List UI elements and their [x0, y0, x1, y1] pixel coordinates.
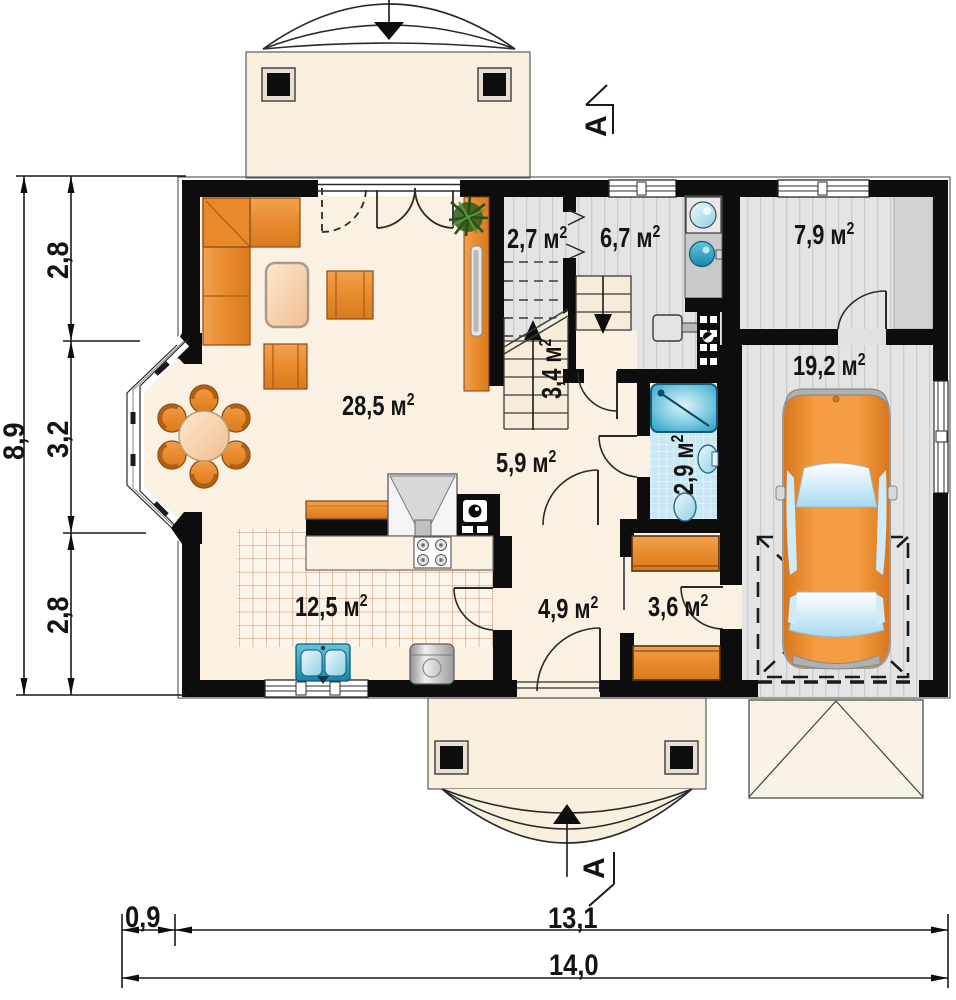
svg-text:14,0: 14,0	[549, 948, 599, 981]
svg-text:4,9 м2: 4,9 м2	[538, 592, 598, 624]
svg-text:8,9: 8,9	[0, 422, 31, 460]
svg-text:2,9 м2: 2,9 м2	[667, 435, 699, 495]
svg-text:0,9: 0,9	[125, 900, 160, 933]
svg-text:7,9 м2: 7,9 м2	[794, 218, 854, 250]
svg-text:3,4 м2: 3,4 м2	[535, 339, 567, 399]
svg-text:3,2: 3,2	[42, 420, 76, 458]
svg-text:28,5 м2: 28,5 м2	[342, 389, 415, 421]
svg-text:6,7 м2: 6,7 м2	[600, 221, 660, 253]
svg-text:13,1: 13,1	[548, 901, 598, 934]
svg-text:5,9 м2: 5,9 м2	[496, 446, 556, 478]
svg-text:2,8: 2,8	[42, 596, 76, 634]
svg-text:A: A	[580, 115, 613, 137]
svg-text:A: A	[578, 857, 611, 879]
svg-text:3,6 м2: 3,6 м2	[648, 590, 708, 622]
svg-text:19,2 м2: 19,2 м2	[793, 349, 866, 381]
svg-text:2,8: 2,8	[42, 241, 76, 279]
svg-text:2,7 м2: 2,7 м2	[507, 222, 567, 254]
svg-text:12,5 м2: 12,5 м2	[295, 590, 368, 622]
